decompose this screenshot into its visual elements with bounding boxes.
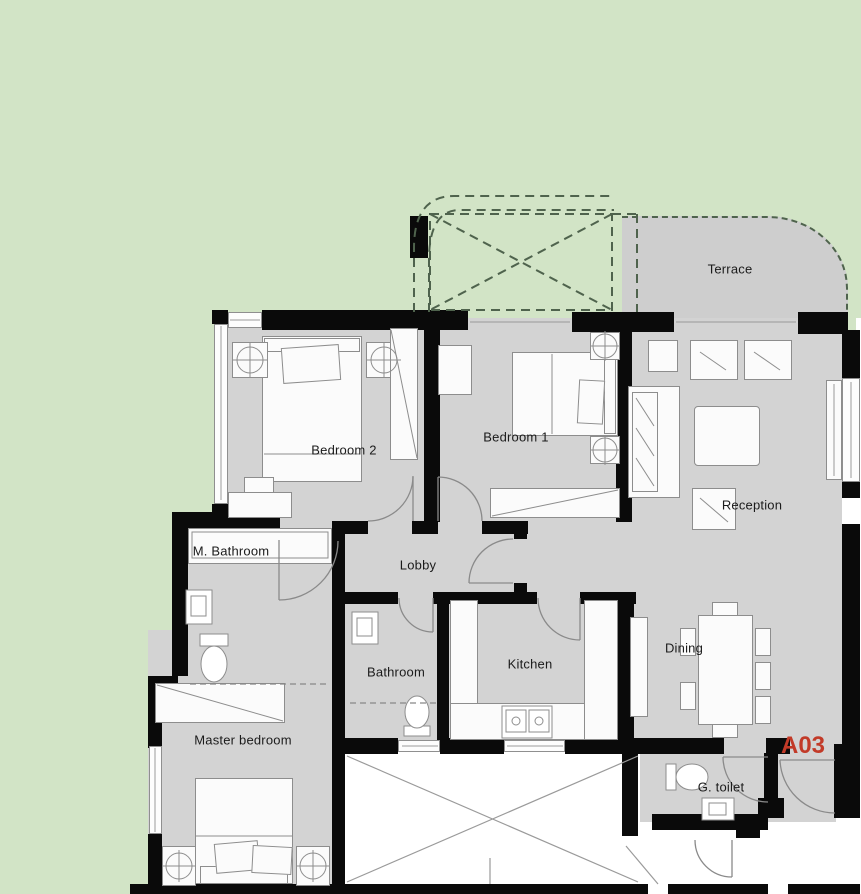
window: [214, 324, 228, 504]
label-reception: Reception: [722, 498, 782, 513]
wall: [622, 744, 638, 836]
window: [228, 312, 262, 328]
wall: [668, 884, 768, 894]
dining-chair: [755, 628, 771, 656]
nightstand: [590, 436, 620, 464]
dining-table: [698, 615, 753, 725]
wall: [514, 521, 527, 539]
armchair: [690, 340, 738, 380]
armchair: [744, 340, 792, 380]
wall: [212, 310, 228, 324]
label-kitchen: Kitchen: [508, 657, 553, 672]
wall: [412, 521, 438, 534]
label-terrace: Terrace: [708, 262, 753, 277]
pillow: [251, 845, 292, 875]
coffee-table: [694, 406, 760, 466]
wall-notch: [842, 498, 860, 524]
side-table: [648, 340, 678, 372]
wall: [548, 884, 648, 894]
window: [149, 746, 162, 834]
wall: [616, 312, 632, 332]
window: [842, 378, 860, 482]
desk: [438, 345, 472, 395]
desk: [228, 492, 292, 518]
wall: [262, 310, 468, 330]
window: [398, 740, 440, 752]
floor-plan-page: { "plan": { "unit_label": "A03", "rooms"…: [0, 0, 861, 894]
wall: [834, 744, 860, 818]
bed-headboard: [604, 354, 616, 434]
label-m-bathroom: M. Bathroom: [193, 544, 270, 559]
dining-chair: [712, 602, 738, 616]
wall: [172, 528, 188, 676]
nightstand: [296, 846, 330, 886]
wardrobe: [490, 488, 620, 518]
pergola-post: [410, 216, 428, 258]
wall: [437, 592, 449, 744]
dining-chair: [755, 662, 771, 690]
wall: [640, 738, 724, 754]
desk-chair: [244, 477, 274, 493]
wall: [788, 884, 860, 894]
wall: [440, 738, 504, 754]
wall: [332, 738, 398, 754]
wardrobe: [155, 683, 285, 723]
pillow: [577, 379, 605, 424]
nightstand: [162, 846, 196, 886]
cabinet: [630, 617, 648, 717]
label-bedroom-2: Bedroom 2: [311, 443, 376, 458]
dining-chair: [755, 696, 771, 724]
label-g-toilet: G. toilet: [698, 780, 745, 795]
wall: [148, 834, 162, 886]
dining-chair: [680, 682, 696, 710]
wall: [798, 312, 848, 334]
floor-plan: Terrace Bedroom 2 Bedroom 1 Reception M.…: [0, 0, 861, 894]
label-lobby: Lobby: [400, 558, 436, 573]
nightstand: [590, 332, 620, 360]
stairwell-area: [345, 744, 545, 894]
pillow: [281, 344, 341, 384]
nightstand: [232, 342, 268, 378]
sofa-cushions: [632, 392, 658, 492]
wall: [332, 521, 345, 886]
label-bedroom-1: Bedroom 1: [483, 430, 548, 445]
label-master-bedroom: Master bedroom: [194, 733, 291, 748]
wall: [345, 592, 398, 604]
label-bathroom: Bathroom: [367, 665, 425, 680]
dining-chair: [712, 724, 738, 738]
kitchen-counter: [584, 600, 618, 740]
wall-step: [736, 818, 760, 838]
unit-number-label: A03: [781, 732, 825, 760]
wardrobe: [390, 328, 418, 460]
window: [504, 740, 565, 752]
label-dining: Dining: [665, 641, 703, 656]
window-sill: [826, 380, 842, 480]
wall-step: [758, 798, 784, 818]
